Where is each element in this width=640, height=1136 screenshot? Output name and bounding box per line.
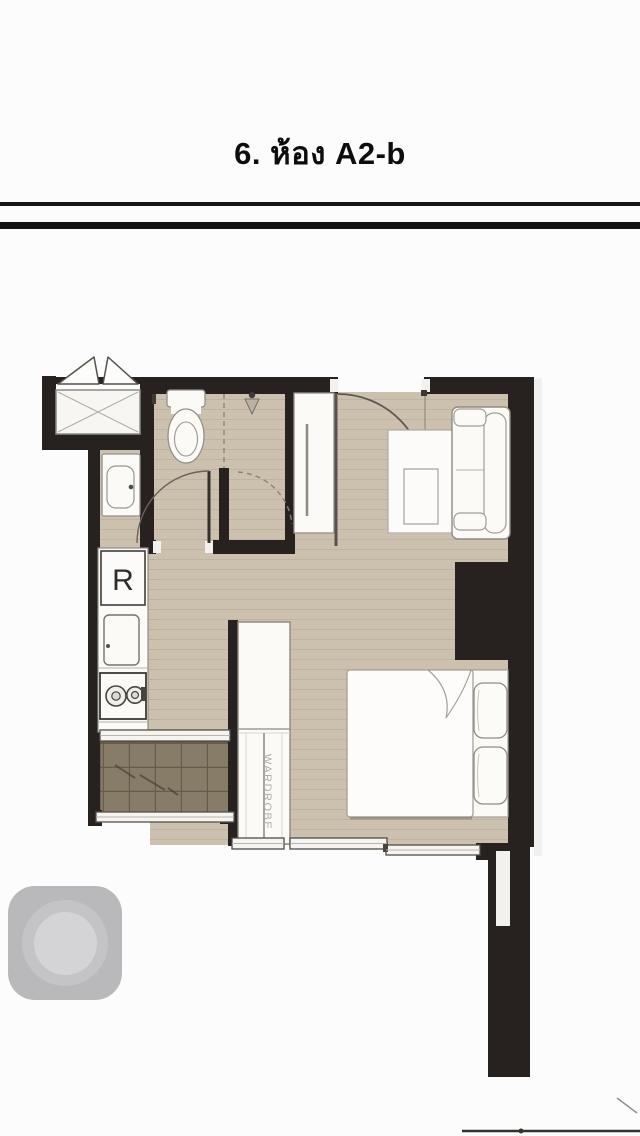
fridge-label: R	[112, 564, 134, 597]
refrigerator: R	[101, 551, 145, 605]
flush-button-icon	[152, 394, 156, 404]
sofa	[452, 407, 510, 539]
wall-slot	[496, 851, 510, 926]
assistive-touch-button[interactable]	[8, 886, 122, 1000]
wall-right	[508, 377, 534, 847]
wall-scan-shadow	[534, 378, 542, 856]
wardrobe-label: WARDROBE	[261, 754, 273, 830]
faucet-dot-icon	[129, 485, 134, 490]
window-latch	[383, 843, 388, 852]
next-figure-partial	[462, 1098, 640, 1134]
sofa-back-cushion	[484, 413, 506, 533]
assistive-touch-ring	[22, 900, 108, 986]
washbasin	[102, 454, 140, 516]
balcony-railing	[96, 812, 234, 822]
wall-shower-divider	[219, 468, 229, 554]
assistive-touch-dot-icon	[34, 912, 97, 975]
stove-icon	[100, 673, 146, 719]
balcony-sliding-door	[100, 730, 230, 741]
sofa-armrest-bottom	[454, 513, 486, 530]
closet-door-right-icon	[103, 357, 138, 384]
faucet-dot-icon	[106, 644, 110, 648]
closet-door-left-icon	[58, 357, 99, 384]
mattress	[347, 670, 473, 817]
door-hinge	[421, 390, 427, 396]
area-rug-table	[388, 430, 460, 534]
balcony-floor	[100, 742, 230, 814]
sofa-armrest-top	[454, 409, 486, 426]
bed	[347, 670, 508, 818]
stove-knob	[141, 687, 146, 701]
wall-bath-left	[140, 377, 154, 554]
wall-column-notch	[455, 562, 508, 660]
hallway-cabinet	[294, 393, 334, 533]
wardrobe: WARDROBE	[238, 622, 290, 844]
kitchen-sink	[104, 615, 139, 665]
entry-closet	[56, 357, 140, 434]
